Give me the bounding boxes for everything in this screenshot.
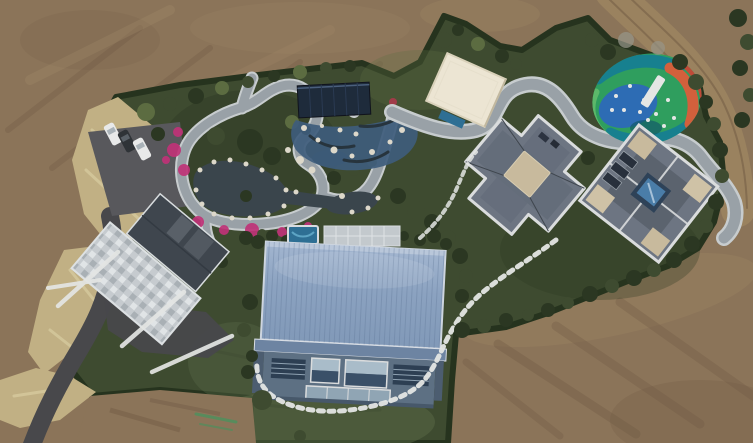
pool-pavilion (297, 82, 371, 118)
terrace-spa-pool (288, 226, 318, 244)
aerial-photo (0, 0, 753, 443)
bottom-dirt-patch (76, 390, 256, 443)
